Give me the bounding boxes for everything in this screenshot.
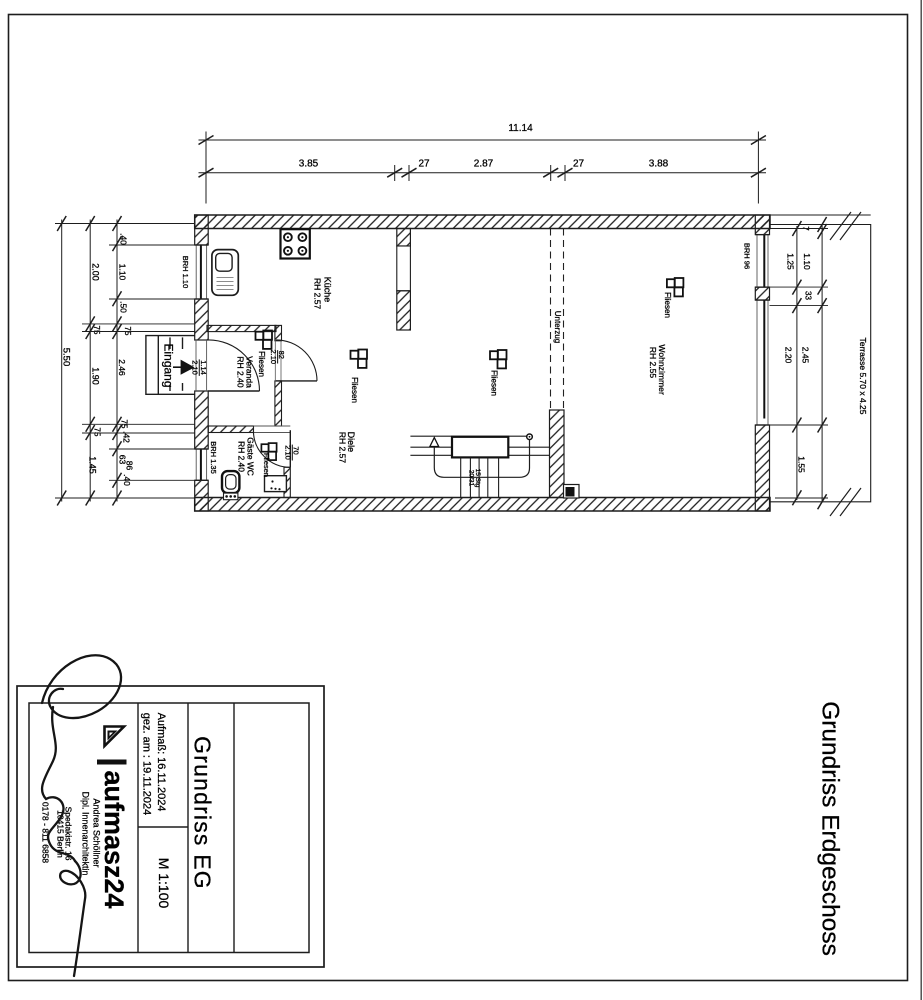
svg-text:86: 86 — [124, 461, 134, 471]
svg-text:RH 2.40: RH 2.40 — [237, 441, 247, 472]
svg-text:2.10: 2.10 — [269, 349, 278, 364]
svg-text:RH 2.40: RH 2.40 — [235, 356, 245, 387]
svg-text:Aufmaß: 16.11.2024: Aufmaß: 16.11.2024 — [155, 713, 167, 812]
svg-text:5.50: 5.50 — [61, 348, 72, 367]
svg-text:1.90: 1.90 — [90, 367, 100, 385]
svg-text:RH 2.57: RH 2.57 — [338, 432, 348, 463]
svg-text:Grundriss Erdgeschoss: Grundriss Erdgeschoss — [816, 701, 843, 956]
svg-text:.50: .50 — [118, 301, 128, 313]
svg-text:2.10: 2.10 — [283, 445, 292, 460]
svg-text:11.14: 11.14 — [508, 123, 533, 134]
svg-text:Dipl. Innenarchitektin: Dipl. Innenarchitektin — [81, 791, 91, 875]
svg-text:Unterzug: Unterzug — [553, 311, 562, 343]
svg-text:20/31: 20/31 — [468, 470, 475, 487]
svg-text:Fliesen: Fliesen — [663, 292, 672, 318]
svg-text:BRH 96: BRH 96 — [742, 243, 751, 269]
svg-text:Küche: Küche — [322, 277, 332, 303]
svg-text:33: 33 — [804, 291, 813, 300]
svg-text:RH 2.55: RH 2.55 — [648, 347, 658, 378]
svg-text:1.45: 1.45 — [87, 456, 97, 474]
svg-text:75: 75 — [93, 428, 102, 437]
svg-text:27: 27 — [418, 159, 430, 170]
svg-text:1.25: 1.25 — [785, 253, 795, 270]
svg-text:2.10: 2.10 — [190, 360, 199, 375]
svg-text:1.55: 1.55 — [796, 456, 806, 473]
svg-text:Terrasse 5.70 x 4.25: Terrasse 5.70 x 4.25 — [858, 337, 868, 414]
svg-text:gez. am : 19.11.2024: gez. am : 19.11.2024 — [141, 713, 153, 816]
svg-text:2.87: 2.87 — [474, 159, 494, 170]
svg-text:3.85: 3.85 — [299, 159, 319, 170]
svg-text:1.10: 1.10 — [117, 264, 127, 281]
svg-text:3.88: 3.88 — [649, 159, 669, 170]
svg-text:.40: .40 — [118, 233, 128, 245]
svg-text:1.10: 1.10 — [802, 253, 812, 270]
svg-text:Eingang: Eingang — [162, 343, 176, 387]
svg-text:27: 27 — [573, 159, 585, 170]
svg-text:Fliesen: Fliesen — [350, 377, 359, 403]
svg-text:M 1:100: M 1:100 — [156, 858, 172, 909]
svg-text:2.45: 2.45 — [800, 347, 810, 364]
svg-text:2.46: 2.46 — [117, 359, 127, 376]
svg-text:Fliesen: Fliesen — [490, 370, 499, 396]
svg-text:BRH 1.35: BRH 1.35 — [209, 441, 218, 474]
svg-text:RH 2.57: RH 2.57 — [312, 278, 322, 309]
svg-text:75: 75 — [92, 326, 101, 335]
svg-text:Fliesen: Fliesen — [262, 453, 271, 477]
svg-text:Grundriss EG: Grundriss EG — [190, 736, 216, 890]
svg-text:2.20: 2.20 — [783, 347, 793, 364]
svg-text:aufmasz24: aufmasz24 — [99, 770, 129, 908]
svg-text:Fliesen: Fliesen — [257, 351, 266, 377]
svg-text:2.00: 2.00 — [90, 263, 100, 281]
svg-text:Andrea Schöllner: Andrea Schöllner — [92, 798, 102, 867]
svg-text:BRH 1.10: BRH 1.10 — [181, 256, 190, 289]
